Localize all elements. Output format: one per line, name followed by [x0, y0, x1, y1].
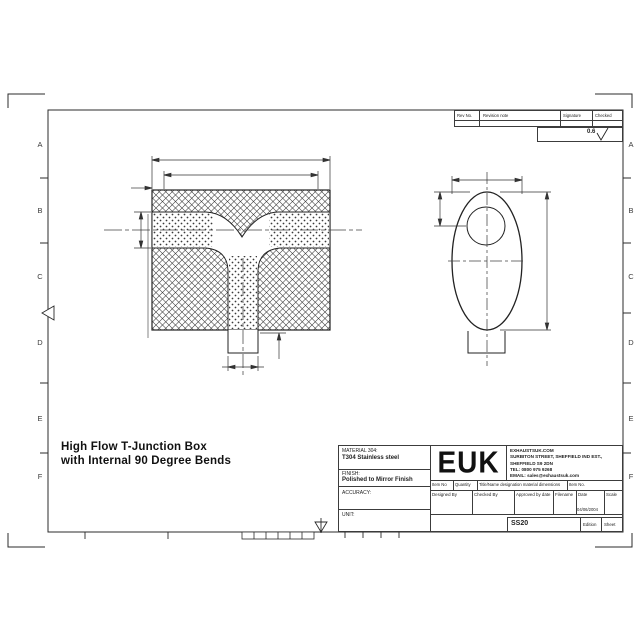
grid-line	[339, 469, 430, 470]
border-letter-right-d: D	[625, 338, 637, 347]
accuracy-label: ACCURACY:	[342, 490, 371, 496]
grid-line	[430, 490, 622, 491]
edition-label: Edition	[583, 522, 596, 527]
grid-line	[479, 111, 480, 126]
drawing-title: High Flow T-Junction Box with Internal 9…	[61, 441, 231, 468]
grid-line	[455, 120, 622, 121]
end-view	[434, 172, 551, 366]
grid-line	[507, 517, 508, 531]
border-letter-right-f: F	[625, 472, 637, 481]
title-block: MATERIAL 304: T304 Stainless steel FINIS…	[338, 445, 623, 532]
grid-line	[507, 517, 622, 518]
surface-finish-band: 0.6	[537, 127, 623, 142]
grid-line	[592, 111, 593, 126]
grid-line	[553, 490, 554, 515]
grid-line	[339, 486, 430, 487]
designed-by-label: Designed By	[432, 492, 457, 497]
border-letter-right-a: A	[625, 140, 637, 149]
grid-line	[514, 490, 515, 515]
company-email: EMAIL: sales@exhaustsuk.com	[510, 473, 622, 479]
checked-by-label: Checked By	[474, 492, 498, 497]
border-letter-left-f: F	[34, 472, 46, 481]
grid-line	[601, 517, 602, 531]
item-no-header: Item No	[432, 482, 447, 487]
front-section-view	[104, 156, 362, 376]
approved-by-label: Approved by date	[516, 492, 550, 497]
date-value: 04/06/2004	[577, 507, 598, 512]
date-label: Date	[578, 492, 587, 497]
material-label: MATERIAL 304:	[342, 448, 378, 454]
cad-linework	[0, 0, 640, 640]
grid-line	[567, 480, 568, 491]
finish-value: Polished to Mirror Finish	[342, 477, 413, 483]
designation-header: Title/Name designation material dimensio…	[479, 482, 560, 487]
filename-label: Filename	[555, 492, 573, 497]
border-letter-left-d: D	[34, 338, 46, 347]
drawing-number: SS20	[511, 520, 528, 527]
grid-line	[477, 480, 478, 491]
end-pipe-stub	[468, 331, 505, 353]
drawing-title-line1: High Flow T-Junction Box	[61, 441, 231, 455]
drawing-title-line2: with Internal 90 Degree Bends	[61, 455, 231, 469]
checked-header: Checked	[595, 113, 612, 118]
grid-line	[560, 111, 561, 126]
border-letter-right-e: E	[625, 414, 637, 423]
border-letter-right-b: B	[625, 206, 637, 215]
grid-line	[430, 514, 622, 515]
grid-line	[339, 509, 430, 510]
grid-line	[604, 490, 605, 515]
scale-label: Scale	[606, 492, 617, 497]
rev-no-header: Rev No.	[457, 113, 472, 118]
revision-table: Rev No. Revision note Signature Checked	[454, 110, 623, 127]
scale-reference-bar	[242, 532, 314, 539]
item-no2-header: Item No.	[569, 482, 585, 487]
material-value: T304 Stainless steel	[342, 455, 399, 461]
border-letter-left-c: C	[34, 272, 46, 281]
company-logo: EUK	[430, 445, 507, 482]
signature-header: Signature	[563, 113, 581, 118]
border-letter-right-c: C	[625, 272, 637, 281]
surface-finish-value: 0.6	[587, 129, 595, 135]
drawing-sheet: A B C D E F A B C D E F Rev No. Revision…	[0, 0, 640, 640]
grid-line	[580, 517, 581, 531]
center-mark-bottom-icon	[315, 518, 327, 533]
grid-line	[472, 490, 473, 515]
border-letter-left-a: A	[34, 140, 46, 149]
unit-label: UNIT:	[342, 512, 355, 518]
company-address: EXHAUSTSUK.COM SURBITON STREET, SHEFFIEL…	[510, 448, 622, 479]
sheet-label: Sheet	[604, 522, 615, 527]
revision-note-header: Revision note	[483, 113, 508, 118]
border-letter-left-b: B	[34, 206, 46, 215]
grid-line	[453, 480, 454, 491]
border-letter-left-e: E	[34, 414, 46, 423]
quantity-header: Quantity	[455, 482, 471, 487]
